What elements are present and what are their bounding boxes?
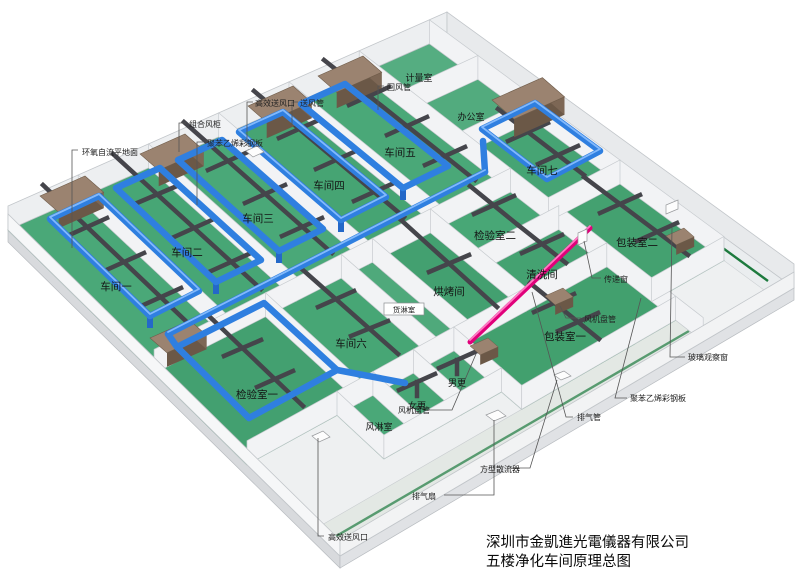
room-label-workshop-3: 车间三	[242, 212, 274, 225]
room-label-inspection-1: 检验室一	[236, 388, 278, 401]
room-label-workshop-5: 车间五	[384, 146, 416, 159]
label-glass-window: 玻璃观察窗	[688, 352, 728, 362]
cleanroom-isometric-diagram: 环氧自流平地面 组合风柜 聚苯乙烯彩钢板 高效送风口 送风管 回风管 风机盘管 …	[0, 0, 800, 587]
room-label-workshop-6: 车间六	[335, 337, 367, 350]
label-polystyrene-panel-top: 聚苯乙烯彩钢板	[207, 138, 263, 148]
room-label-workshop-2: 车间二	[171, 246, 203, 259]
label-exhaust-pipe: 排气管	[577, 412, 601, 422]
company-name: 深圳市金凱進光電儀器有限公司	[486, 533, 689, 551]
diagram-canvas: 环氧自流平地面 组合风柜 聚苯乙烯彩钢板 高效送风口 送风管 回风管 风机盘管 …	[0, 0, 800, 587]
room-label-metrology: 计量室	[405, 72, 432, 83]
room-label-cargo-shower: 货淋室	[393, 305, 416, 315]
cargo-shower-boxed-label: 货淋室	[384, 303, 424, 315]
room-label-inspection-2: 检验室二	[474, 229, 516, 242]
room-label-office: 办公室	[457, 111, 484, 122]
label-exhaust-fan: 排气扇	[412, 491, 436, 501]
title-block: 深圳市金凱進光電儀器有限公司 五楼净化车间原理总图	[486, 533, 689, 570]
room-label-cleaning: 清洗间	[526, 268, 558, 281]
label-hepa-outlet-bottom: 高效送风口	[328, 532, 368, 542]
label-return-duct: 回风管	[387, 82, 411, 92]
label-supply-duct: 送风管	[300, 98, 324, 108]
room-label-women-changing: 女更	[408, 400, 426, 411]
label-pass-through-window: 传递窗	[604, 274, 628, 284]
room-label-workshop-4: 车间四	[313, 179, 345, 192]
label-epoxy-floor: 环氧自流平地面	[82, 147, 138, 157]
label-square-diffuser: 方型散流器	[480, 464, 520, 474]
label-fan-coil-right: 风机盘管	[584, 314, 616, 324]
label-polystyrene-panel-right: 聚苯乙烯彩钢板	[630, 393, 686, 403]
room-label-workshop-1: 车间一	[100, 280, 132, 293]
room-label-workshop-7: 车间七	[526, 164, 558, 177]
room-label-packing-2: 包装室二	[616, 236, 658, 249]
label-hepa-outlet-top: 高效送风口	[255, 98, 295, 108]
label-combined-air-cabinet: 组合风柜	[189, 119, 221, 129]
room-label-air-shower: 风淋室	[365, 421, 392, 432]
room-label-baking: 烘烤间	[433, 285, 465, 298]
room-label-men-changing: 男更	[448, 378, 466, 388]
room-label-packing-1: 包装室一	[544, 330, 586, 343]
duct-connector	[483, 141, 485, 172]
drawing-title: 五楼净化车间原理总图	[486, 553, 631, 570]
